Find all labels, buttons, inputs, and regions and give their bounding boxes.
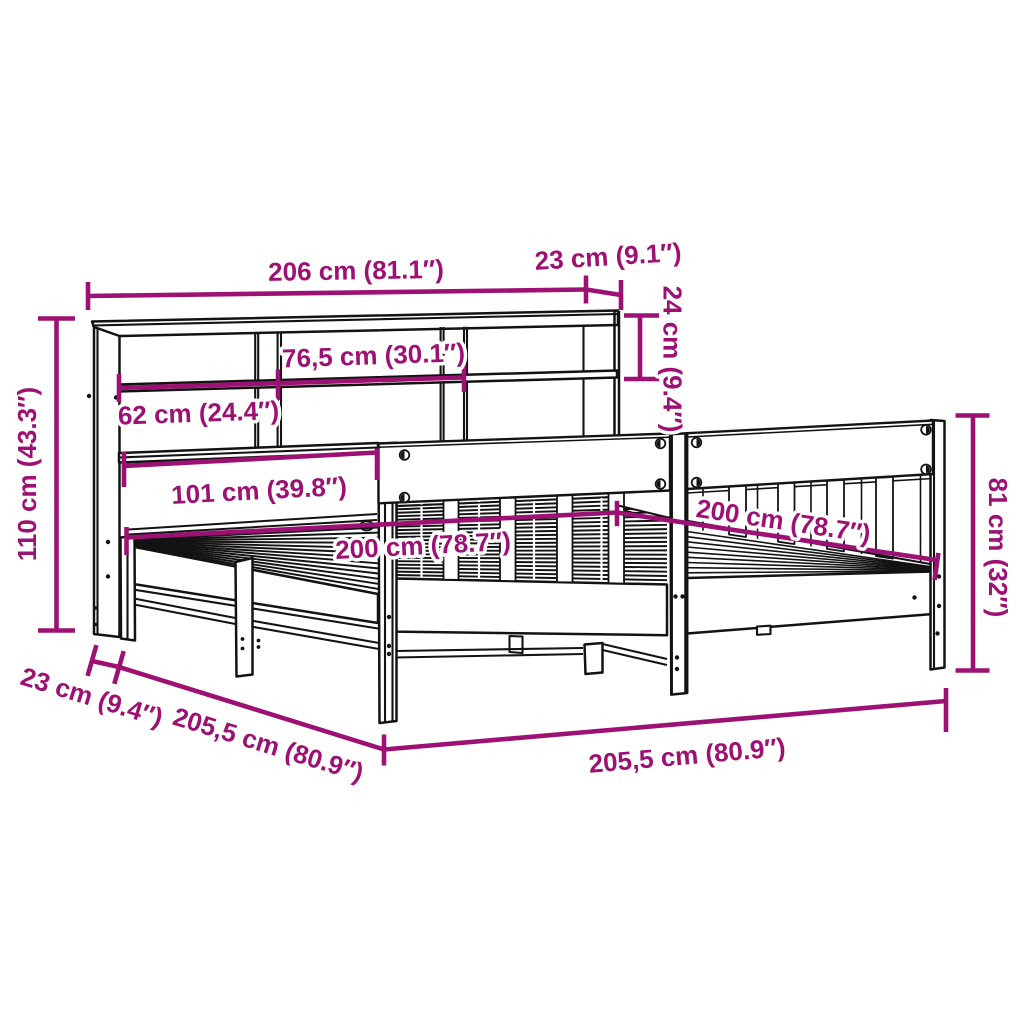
svg-text:76,5 cm (30.1″): 76,5 cm (30.1″) (282, 337, 466, 373)
svg-text:206 cm (81.1″): 206 cm (81.1″) (268, 254, 444, 287)
svg-text:81 cm (32″): 81 cm (32″) (983, 478, 1013, 618)
svg-text:24 cm (9.4″): 24 cm (9.4″) (658, 286, 688, 433)
svg-text:110 cm (43.3″): 110 cm (43.3″) (12, 387, 42, 561)
svg-text:62 cm (24.4″): 62 cm (24.4″) (117, 395, 279, 431)
